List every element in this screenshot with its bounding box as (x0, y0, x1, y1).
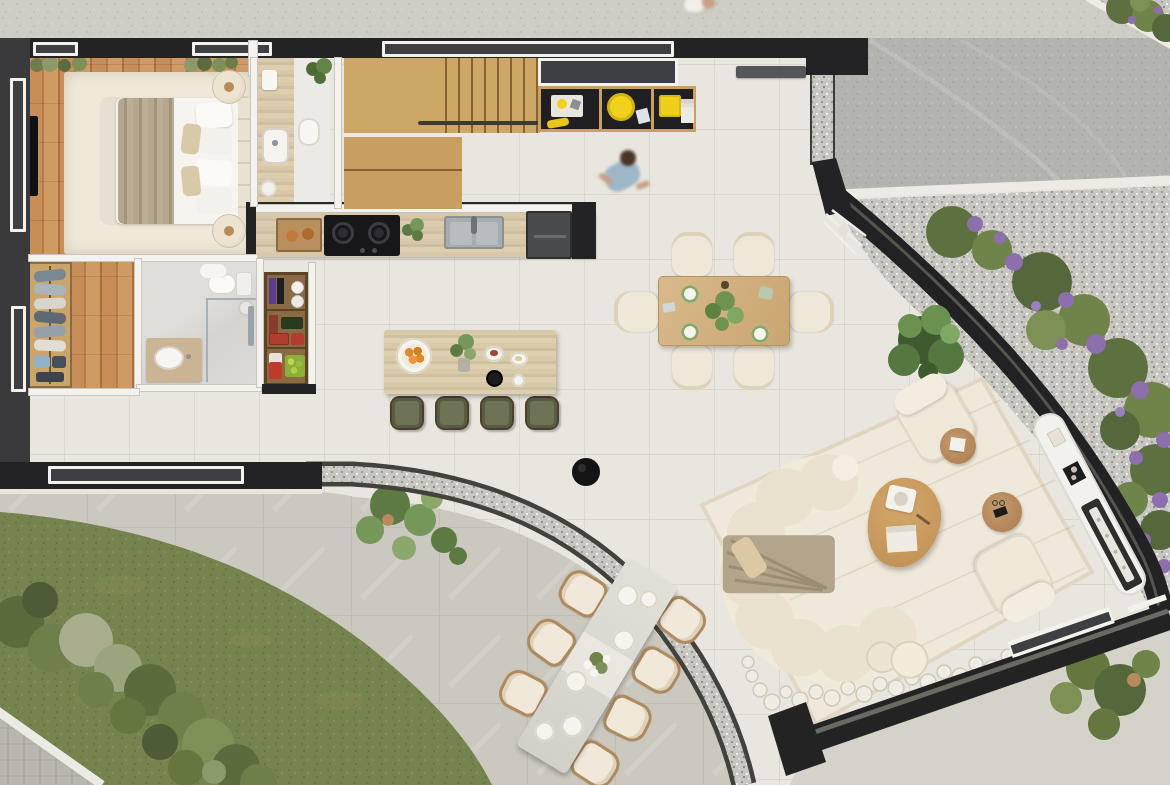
bread-tray (276, 218, 322, 252)
accent-cushion (180, 123, 202, 155)
yellow-roll (546, 117, 569, 129)
glasses (992, 500, 998, 506)
partition-corridor-bath (134, 258, 142, 390)
faucet (186, 354, 191, 359)
bottle (269, 278, 276, 304)
partition-bath-hall (136, 384, 262, 392)
window-north-3 (382, 41, 674, 57)
pouf (212, 70, 246, 104)
partition-ensuite-stair (250, 57, 258, 207)
outdoor-place (531, 718, 558, 745)
yellow-plates (607, 93, 635, 121)
napkin (758, 286, 774, 301)
bar-stool (435, 396, 469, 430)
double-bed (100, 96, 252, 228)
sign-box (269, 353, 282, 379)
crate-red (269, 333, 289, 345)
dining-chair (734, 232, 774, 276)
pillow (195, 159, 232, 187)
books (886, 525, 918, 553)
plate-stack (291, 281, 304, 294)
wall-garland (184, 56, 240, 74)
side-table (982, 492, 1022, 532)
yellow-napkins (659, 95, 681, 117)
pedestrian-top-edge (684, 0, 718, 14)
stool-small (260, 180, 277, 197)
dish (635, 108, 650, 124)
floorplan-render (0, 0, 1170, 785)
crate-red (291, 333, 304, 345)
partition-bath-pantry (256, 258, 264, 388)
clerestory-window (538, 58, 678, 86)
walking-person (598, 144, 654, 200)
books (681, 99, 694, 123)
dining-chair (672, 232, 712, 276)
wall-garland (30, 56, 94, 74)
island-plant (450, 334, 480, 374)
stair-handrail (418, 121, 540, 125)
sidewalk-strip (0, 0, 1170, 38)
stair-lower-flight (344, 133, 462, 209)
shoes (36, 372, 64, 382)
garment (34, 325, 67, 339)
walk-in-closet (28, 262, 72, 388)
kitchen-sink (444, 216, 504, 249)
garment (34, 283, 67, 296)
garment (34, 339, 67, 352)
oven-unit (526, 211, 572, 259)
entry-gravel-strip (811, 72, 834, 164)
entry-door-leaf (736, 66, 806, 78)
ensuite-plant (306, 58, 332, 88)
garment (34, 268, 67, 282)
shower-column (248, 306, 254, 346)
south-sill (0, 489, 322, 494)
outdoor-place (612, 581, 642, 611)
partition-pantry-hall (308, 262, 316, 388)
bottle (277, 278, 284, 304)
vanity-tray (262, 70, 277, 90)
side-table (940, 428, 976, 464)
bath-vanity (146, 338, 202, 382)
partition-stair-west (334, 57, 342, 209)
window-north-1 (33, 42, 78, 56)
pouf (212, 214, 246, 248)
small-cup (512, 374, 525, 387)
window-south (48, 466, 244, 484)
corridor-wood-floor (70, 259, 140, 393)
window-north-2 (192, 42, 272, 56)
garment (34, 311, 67, 325)
white-box (949, 437, 966, 452)
sink-bowl (154, 346, 184, 370)
credenza (538, 86, 696, 132)
pillow (195, 100, 233, 129)
kitchen-pier (246, 202, 256, 259)
partition-bedroom-bath (28, 254, 258, 262)
dining-chair (734, 346, 774, 390)
cooktop (324, 215, 400, 256)
basket (52, 356, 66, 368)
crate-green (281, 317, 303, 329)
faucet (272, 140, 278, 146)
stair-rail-light (344, 133, 462, 137)
centerpiece-plant (705, 289, 749, 335)
place-setting (751, 325, 769, 343)
place-setting (681, 285, 699, 303)
dining-chair (614, 292, 658, 332)
bowl (721, 281, 729, 289)
bar-stool (525, 396, 559, 430)
window-west-1 (10, 78, 26, 232)
partition-corridor-hall (28, 388, 140, 396)
bar-stool (390, 396, 424, 430)
pantry-bar (264, 272, 308, 386)
bar-stool (480, 396, 514, 430)
kitchen-pier (572, 202, 596, 259)
yellow-cup (557, 99, 567, 109)
dining-chair (790, 292, 834, 332)
vanity-sink (262, 128, 289, 164)
window-west-2 (11, 306, 26, 392)
apples (285, 355, 305, 377)
faucet (471, 216, 477, 234)
twig (916, 513, 931, 525)
person-head (620, 150, 636, 166)
outdoor-place (636, 587, 661, 612)
remote (993, 506, 1008, 518)
wc (298, 118, 320, 146)
dining-chair (672, 346, 712, 390)
garment (34, 297, 67, 310)
plate-stack (291, 295, 304, 308)
black-bowl (486, 370, 503, 387)
ottoman-highlight (578, 464, 586, 472)
napkin (662, 302, 675, 313)
dining-table (658, 276, 790, 346)
place-setting (681, 323, 699, 341)
black-ottoman (572, 458, 600, 486)
vase (458, 358, 470, 372)
glasses (999, 500, 1005, 506)
kitchen-island (384, 330, 556, 394)
tray (885, 484, 917, 513)
accent-cushion (180, 165, 201, 197)
pantry-base-wall (262, 384, 316, 394)
basket (34, 356, 50, 368)
entry-wall-block (806, 38, 868, 75)
throw-blanket (118, 98, 174, 224)
counter-plant (402, 218, 426, 244)
outdoor-place (557, 711, 587, 741)
towels (200, 264, 226, 278)
